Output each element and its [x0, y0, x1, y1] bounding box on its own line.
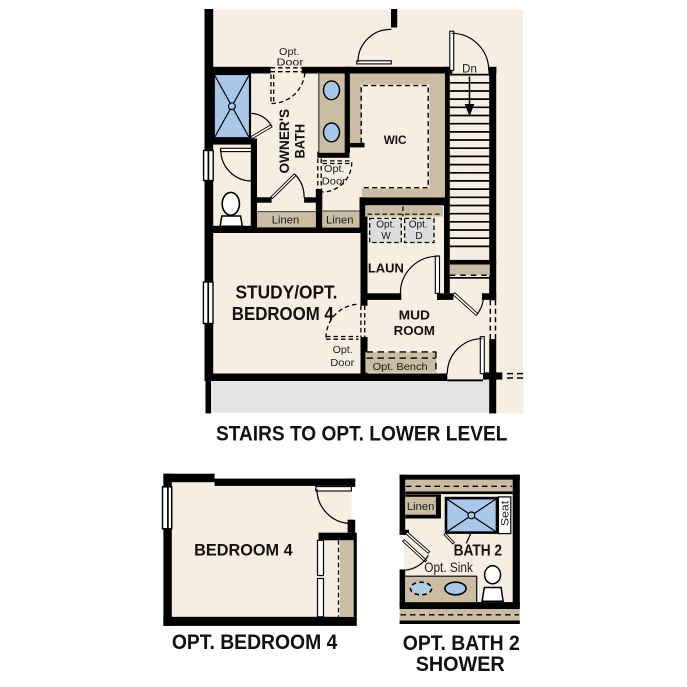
svg-text:Linen: Linen [407, 501, 435, 513]
svg-text:OPT. BATH 2SHOWER: OPT. BATH 2SHOWER [403, 632, 520, 676]
svg-text:BATH 2: BATH 2 [454, 542, 503, 559]
svg-text:Seat: Seat [500, 501, 512, 526]
svg-text:Opt.: Opt. [333, 345, 353, 356]
svg-text:Opt.: Opt. [376, 219, 395, 230]
svg-text:STAIRS TO OPT. LOWER LEVEL: STAIRS TO OPT. LOWER LEVEL [216, 423, 508, 446]
svg-text:Linen: Linen [272, 214, 300, 226]
svg-text:Opt.: Opt. [409, 219, 428, 230]
svg-text:OPT. BEDROOM 4: OPT. BEDROOM 4 [172, 631, 338, 654]
svg-text:Linen: Linen [326, 214, 354, 226]
svg-text:Opt.: Opt. [324, 164, 345, 175]
svg-text:LAUN: LAUN [368, 261, 404, 276]
svg-text:D: D [415, 231, 422, 242]
svg-text:MUDROOM: MUDROOM [394, 308, 435, 339]
svg-text:Dn: Dn [462, 64, 477, 76]
svg-text:STUDY/OPT.BEDROOM 4: STUDY/OPT.BEDROOM 4 [232, 281, 338, 324]
svg-text:W: W [381, 231, 391, 242]
svg-text:BEDROOM 4: BEDROOM 4 [194, 541, 293, 560]
svg-text:Door: Door [277, 57, 305, 69]
svg-text:Opt. Sink: Opt. Sink [424, 560, 473, 575]
svg-text:WIC: WIC [384, 133, 407, 147]
svg-text:Door: Door [322, 177, 347, 188]
svg-text:Opt. Bench: Opt. Bench [373, 362, 428, 373]
svg-text:Door: Door [330, 358, 355, 369]
